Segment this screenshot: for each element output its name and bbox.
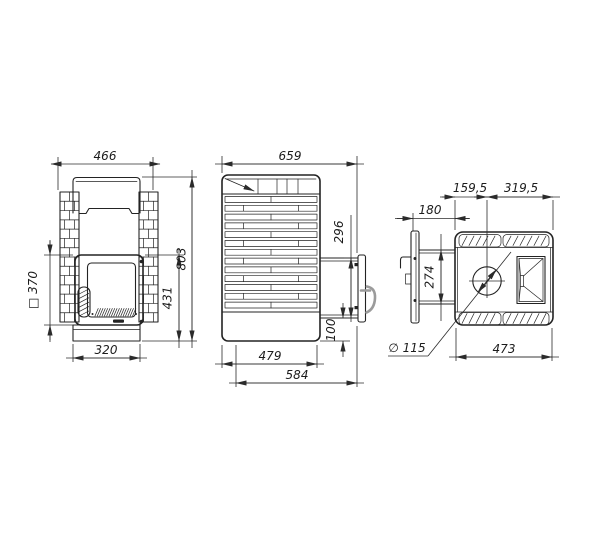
- side-cap-dividers: [258, 179, 298, 194]
- grille-dot-left: [92, 313, 94, 315]
- vent-hatch-top: [513, 236, 518, 246]
- vent-hatch-top: [469, 236, 474, 246]
- stove-technical-drawing: 466 □ 370 431 803: [0, 0, 600, 536]
- vent-hatch-bottom: [490, 314, 495, 324]
- wood-slat: [225, 276, 317, 282]
- dim-label-296: 296: [332, 220, 346, 243]
- wood-slat: [225, 293, 317, 299]
- side-door-handle: [361, 287, 375, 313]
- stove-door-frame: [75, 255, 143, 325]
- flange-bolt-top: [355, 263, 358, 266]
- vent-hatch-top: [476, 236, 481, 246]
- grille-dot-right: [135, 313, 137, 315]
- vent-hatch-top: [534, 236, 539, 246]
- dimension-tunnel-length: 180: [395, 203, 470, 231]
- top-door-handle-hook: [401, 257, 411, 268]
- top-view: 159,5 319,5 180 274 473 ∅ 115: [388, 181, 560, 361]
- door-handle: [78, 287, 90, 317]
- dim-label-100: 100: [324, 318, 338, 341]
- dimension-bottom-offset: 100: [320, 303, 350, 357]
- vent-band-bottom-back: [503, 313, 549, 326]
- dimension-total-height: 803: [142, 170, 197, 348]
- door-hinge-bottom: [140, 320, 144, 324]
- dim-label-180: 180: [419, 203, 442, 217]
- vent-hatch-bottom: [534, 314, 539, 324]
- side-view: 659 296 100 479: [215, 149, 375, 387]
- side-cap-diagonal: [225, 179, 254, 192]
- door-hinge-top: [140, 260, 144, 264]
- dim-label-473: 473: [493, 342, 516, 356]
- dim-label-584: 584: [286, 368, 309, 382]
- front-view: 466 □ 370 431 803: [26, 149, 197, 362]
- dimension-top-width: 473: [449, 328, 559, 361]
- dim-label-320: 320: [95, 343, 118, 357]
- vent-hatch-top: [541, 236, 546, 246]
- vent-hatch-bottom: [520, 314, 525, 324]
- vent-hatch-bottom: [462, 314, 467, 324]
- side-door-flange: [358, 255, 366, 322]
- dim-label-319-5: 319,5: [504, 181, 538, 195]
- vent-hatch-top: [462, 236, 467, 246]
- top-flange-bolt-top: [414, 257, 417, 260]
- vent-hatch-bottom: [527, 314, 532, 324]
- dim-label-466: 466: [94, 149, 117, 163]
- dim-label-659: 659: [279, 149, 302, 163]
- dim-label-159-5: 159,5: [453, 181, 487, 195]
- dimension-chimney-position: 159,5 319,5: [440, 181, 560, 230]
- wood-slat: [225, 258, 317, 264]
- dim-label-431: 431: [161, 287, 175, 310]
- vent-hatch-bottom: [506, 314, 511, 324]
- side-wood-slats: [225, 197, 317, 309]
- dim-label-370: □ 370: [26, 271, 40, 309]
- dim-label-479: 479: [259, 349, 282, 363]
- vent-hatch-bottom: [483, 314, 488, 324]
- wood-slat: [225, 205, 317, 211]
- vent-hatch-bottom: [541, 314, 546, 324]
- dim-label-diameter-115: ∅ 115: [388, 341, 425, 355]
- front-shoulder-step: [79, 209, 139, 214]
- vent-hatch-marks: [462, 236, 546, 324]
- technical-drawing-canvas: 466 □ 370 431 803: [0, 0, 600, 536]
- vent-band-top-back: [503, 235, 549, 248]
- dimension-depth-with-door: 584: [229, 326, 364, 387]
- air-grille: [95, 309, 136, 317]
- dimension-front-width: 466: [51, 149, 160, 190]
- front-top-cap: [73, 178, 140, 214]
- dimension-base-width: 320: [66, 343, 147, 362]
- side-firebox-tunnel: [320, 258, 358, 318]
- dim-label-274: 274: [423, 266, 437, 289]
- top-flange-latch-catch: [406, 274, 412, 284]
- dimension-tunnel-width: 274: [423, 234, 442, 321]
- dimension-door-frame-height: 296: [332, 215, 358, 322]
- dimension-body-depth: 479: [215, 345, 324, 368]
- wood-slat: [225, 223, 317, 229]
- top-door-flange: [411, 231, 419, 323]
- dimension-chimney-diameter: ∅ 115: [388, 341, 428, 356]
- stone-chamber-chute: [517, 257, 545, 304]
- wood-slat: [225, 241, 317, 247]
- door-latch: [113, 320, 124, 323]
- vent-hatch-bottom: [469, 314, 474, 324]
- vent-hatch-bottom: [513, 314, 518, 324]
- flange-bolt-bottom: [355, 306, 358, 309]
- dimension-door-square: □ 370: [26, 240, 73, 342]
- base-pedestal: [73, 325, 140, 341]
- top-flange-bolt-bottom: [414, 299, 417, 302]
- vent-hatch-top: [527, 236, 532, 246]
- chimney-outlet: [428, 200, 511, 356]
- vent-hatch-top: [490, 236, 495, 246]
- vent-hatch-top: [506, 236, 511, 246]
- vent-hatch-top: [520, 236, 525, 246]
- vent-hatch-bottom: [476, 314, 481, 324]
- dim-label-803: 803: [175, 248, 189, 271]
